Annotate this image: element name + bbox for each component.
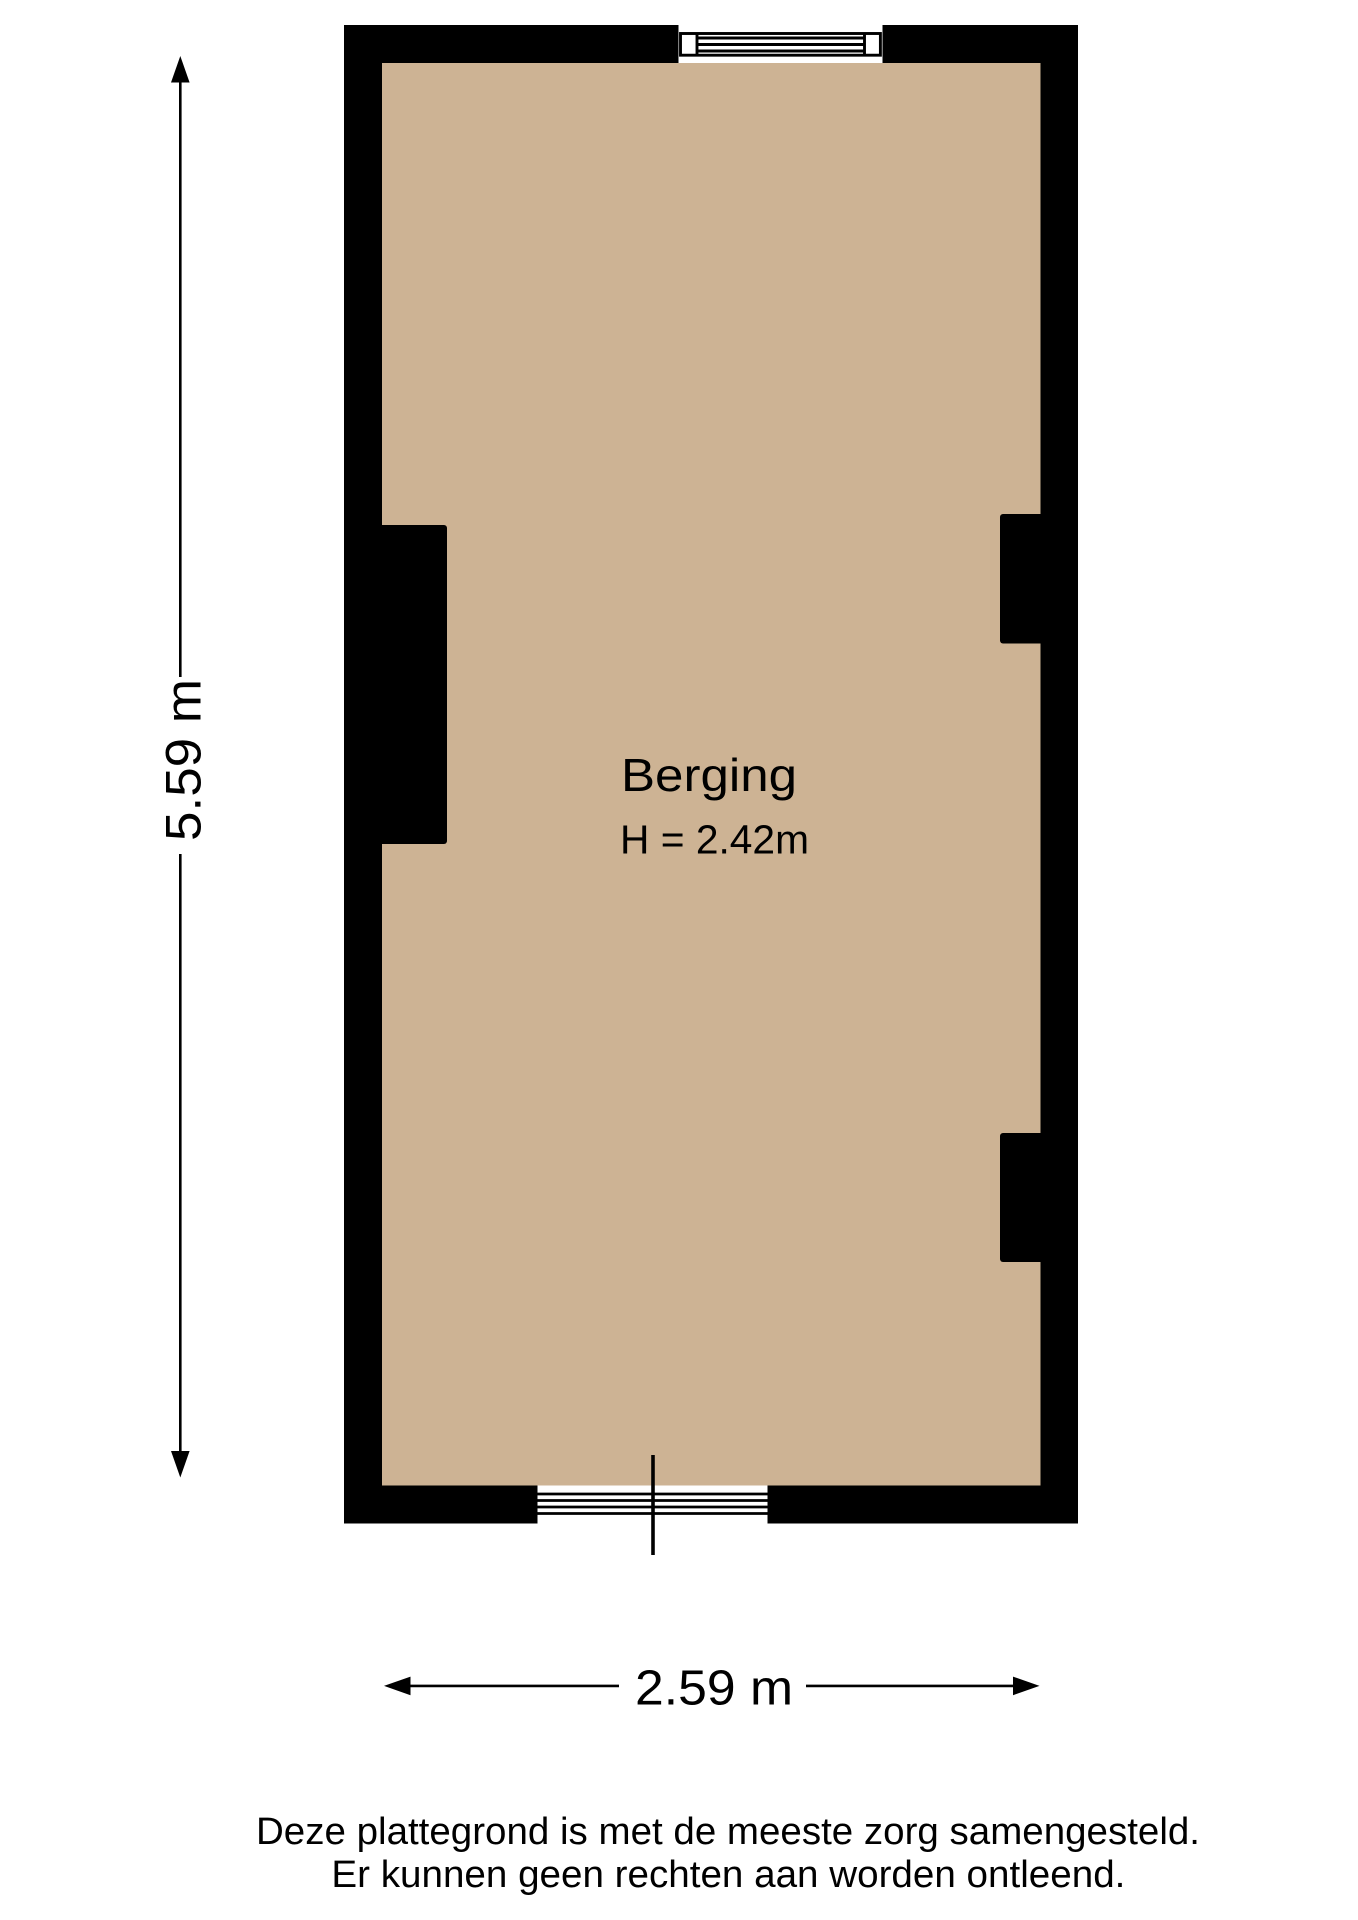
svg-text:H = 2.42m: H = 2.42m xyxy=(620,817,809,863)
svg-text:Berging: Berging xyxy=(621,749,797,801)
svg-text:2.59 m: 2.59 m xyxy=(635,1660,793,1715)
svg-text:5.59 m: 5.59 m xyxy=(154,679,211,841)
svg-text:Er kunnen geen rechten aan wor: Er kunnen geen rechten aan worden ontlee… xyxy=(331,1854,1125,1896)
svg-text:Deze plattegrond is met de mee: Deze plattegrond is met de meeste zorg s… xyxy=(256,1811,1200,1853)
